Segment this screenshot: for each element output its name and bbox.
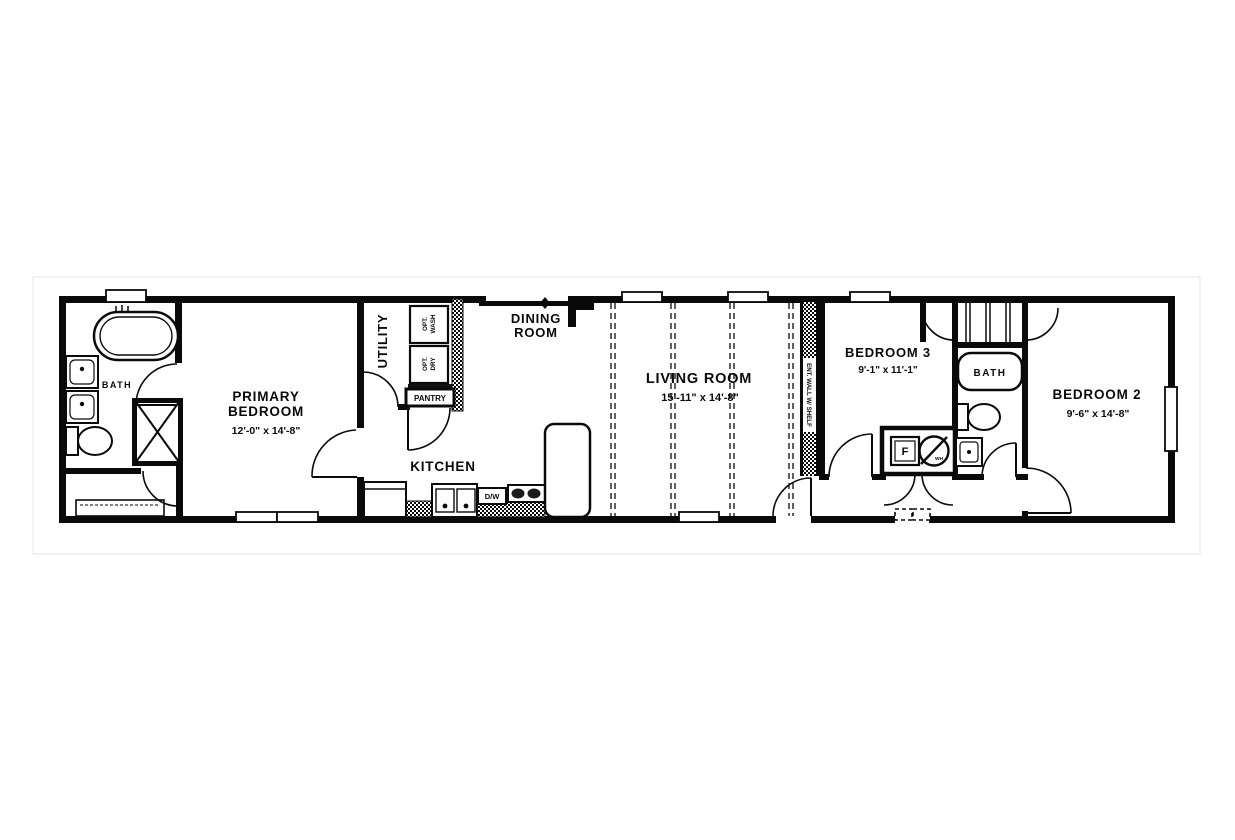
living-room-label: LIVING ROOM	[646, 371, 752, 387]
opt-wash-label: OPT. WASH	[422, 314, 437, 333]
opt-dry-label: OPT. DRY	[422, 357, 437, 371]
mechanical-closet	[882, 428, 955, 474]
window	[277, 512, 318, 522]
door-mechanical-right	[922, 474, 953, 505]
door-primary-bedroom	[312, 430, 357, 477]
door-mechanical-left	[884, 474, 915, 505]
dishwasher-label: D/W	[485, 492, 501, 501]
washer-icon	[410, 306, 448, 343]
garden-tub-inner	[100, 317, 172, 355]
hall-wardrobe	[966, 300, 1010, 342]
bedroom3-dims: 9'-1" x 11'-1"	[858, 365, 918, 376]
svg-text:WASH: WASH	[430, 314, 437, 333]
vanity-sink-bowl	[70, 360, 94, 384]
window	[850, 292, 890, 302]
door-bedroom3	[829, 434, 872, 477]
bedroom3-label: BEDROOM 3	[845, 345, 931, 360]
window	[679, 512, 719, 522]
window	[622, 292, 662, 302]
water-heater-label: WH	[935, 456, 944, 462]
sink-drain	[443, 504, 448, 509]
door-front-entry	[773, 478, 811, 516]
dryer-icon	[410, 346, 448, 383]
bath-primary-label: BATH	[102, 380, 132, 390]
window	[236, 512, 277, 522]
ent-wall: ENT. WALL W/ SHELF	[800, 302, 819, 476]
svg-text:OPT.: OPT.	[422, 357, 429, 371]
svg-text:OPT.: OPT.	[422, 317, 429, 331]
primary-bedroom-label-line1: PRIMARY	[232, 389, 299, 404]
floorplan-drawing: ENT. WALL W/ SHELF	[0, 0, 1235, 840]
burner	[528, 489, 541, 499]
window	[728, 292, 768, 302]
door-utility	[360, 372, 398, 407]
door-pantry-hall	[408, 408, 450, 450]
sink-drain	[80, 367, 84, 371]
toilet-tank-icon	[66, 427, 78, 455]
door-bedroom2	[1026, 468, 1071, 513]
toilet-bowl-icon	[968, 404, 1000, 430]
toilet-tank-icon	[957, 404, 968, 430]
sink-drain	[464, 504, 469, 509]
door-bedroom2-closet	[1026, 308, 1058, 340]
walkin-closet	[76, 500, 164, 516]
range-icon	[364, 482, 406, 517]
bedroom2-label: BEDROOM 2	[1053, 387, 1142, 402]
primary-bedroom-dims: 12'-0" x 14'-8"	[232, 425, 301, 437]
primary-closet	[135, 401, 181, 464]
exterior-walls	[59, 296, 1175, 523]
window	[1165, 387, 1177, 451]
ceiling-beam-lines	[611, 303, 793, 516]
refrigerator-icon	[545, 424, 590, 517]
utility-label: UTILITY	[375, 314, 390, 369]
optional-door	[895, 509, 930, 520]
bath-hall-label: BATH	[973, 368, 1006, 379]
burner	[512, 489, 525, 499]
sink-drain	[80, 402, 84, 406]
door-bedroom3-closet	[922, 308, 954, 340]
svg-text:DRY: DRY	[430, 357, 437, 371]
sink-drain	[967, 450, 971, 454]
furnace-label: F	[902, 446, 909, 458]
kitchen-label: KITCHEN	[410, 459, 476, 474]
toilet-bowl-icon	[78, 427, 112, 455]
living-room-dims: 15'-11" x 14'-8"	[661, 392, 738, 404]
window	[106, 290, 146, 302]
wardrobe-icon	[76, 500, 164, 516]
floorplan-page: ENT. WALL W/ SHELF	[0, 0, 1235, 840]
door-hall-bath	[982, 443, 1016, 477]
vanity-sink-bowl	[70, 395, 94, 419]
pantry-label: PANTRY	[414, 394, 447, 403]
dining-room-label-line2: ROOM	[514, 325, 558, 340]
dining-room-label-line1: DINING	[511, 311, 561, 326]
sink-basin	[436, 489, 454, 512]
primary-bedroom-label-line2: BEDROOM	[228, 404, 304, 419]
sink-basin	[457, 489, 475, 512]
ent-wall-label: ENT. WALL W/ SHELF	[805, 363, 812, 427]
kitchen-fixtures	[363, 424, 590, 517]
bedroom2-dims: 9'-6" x 14'-8"	[1067, 408, 1130, 420]
